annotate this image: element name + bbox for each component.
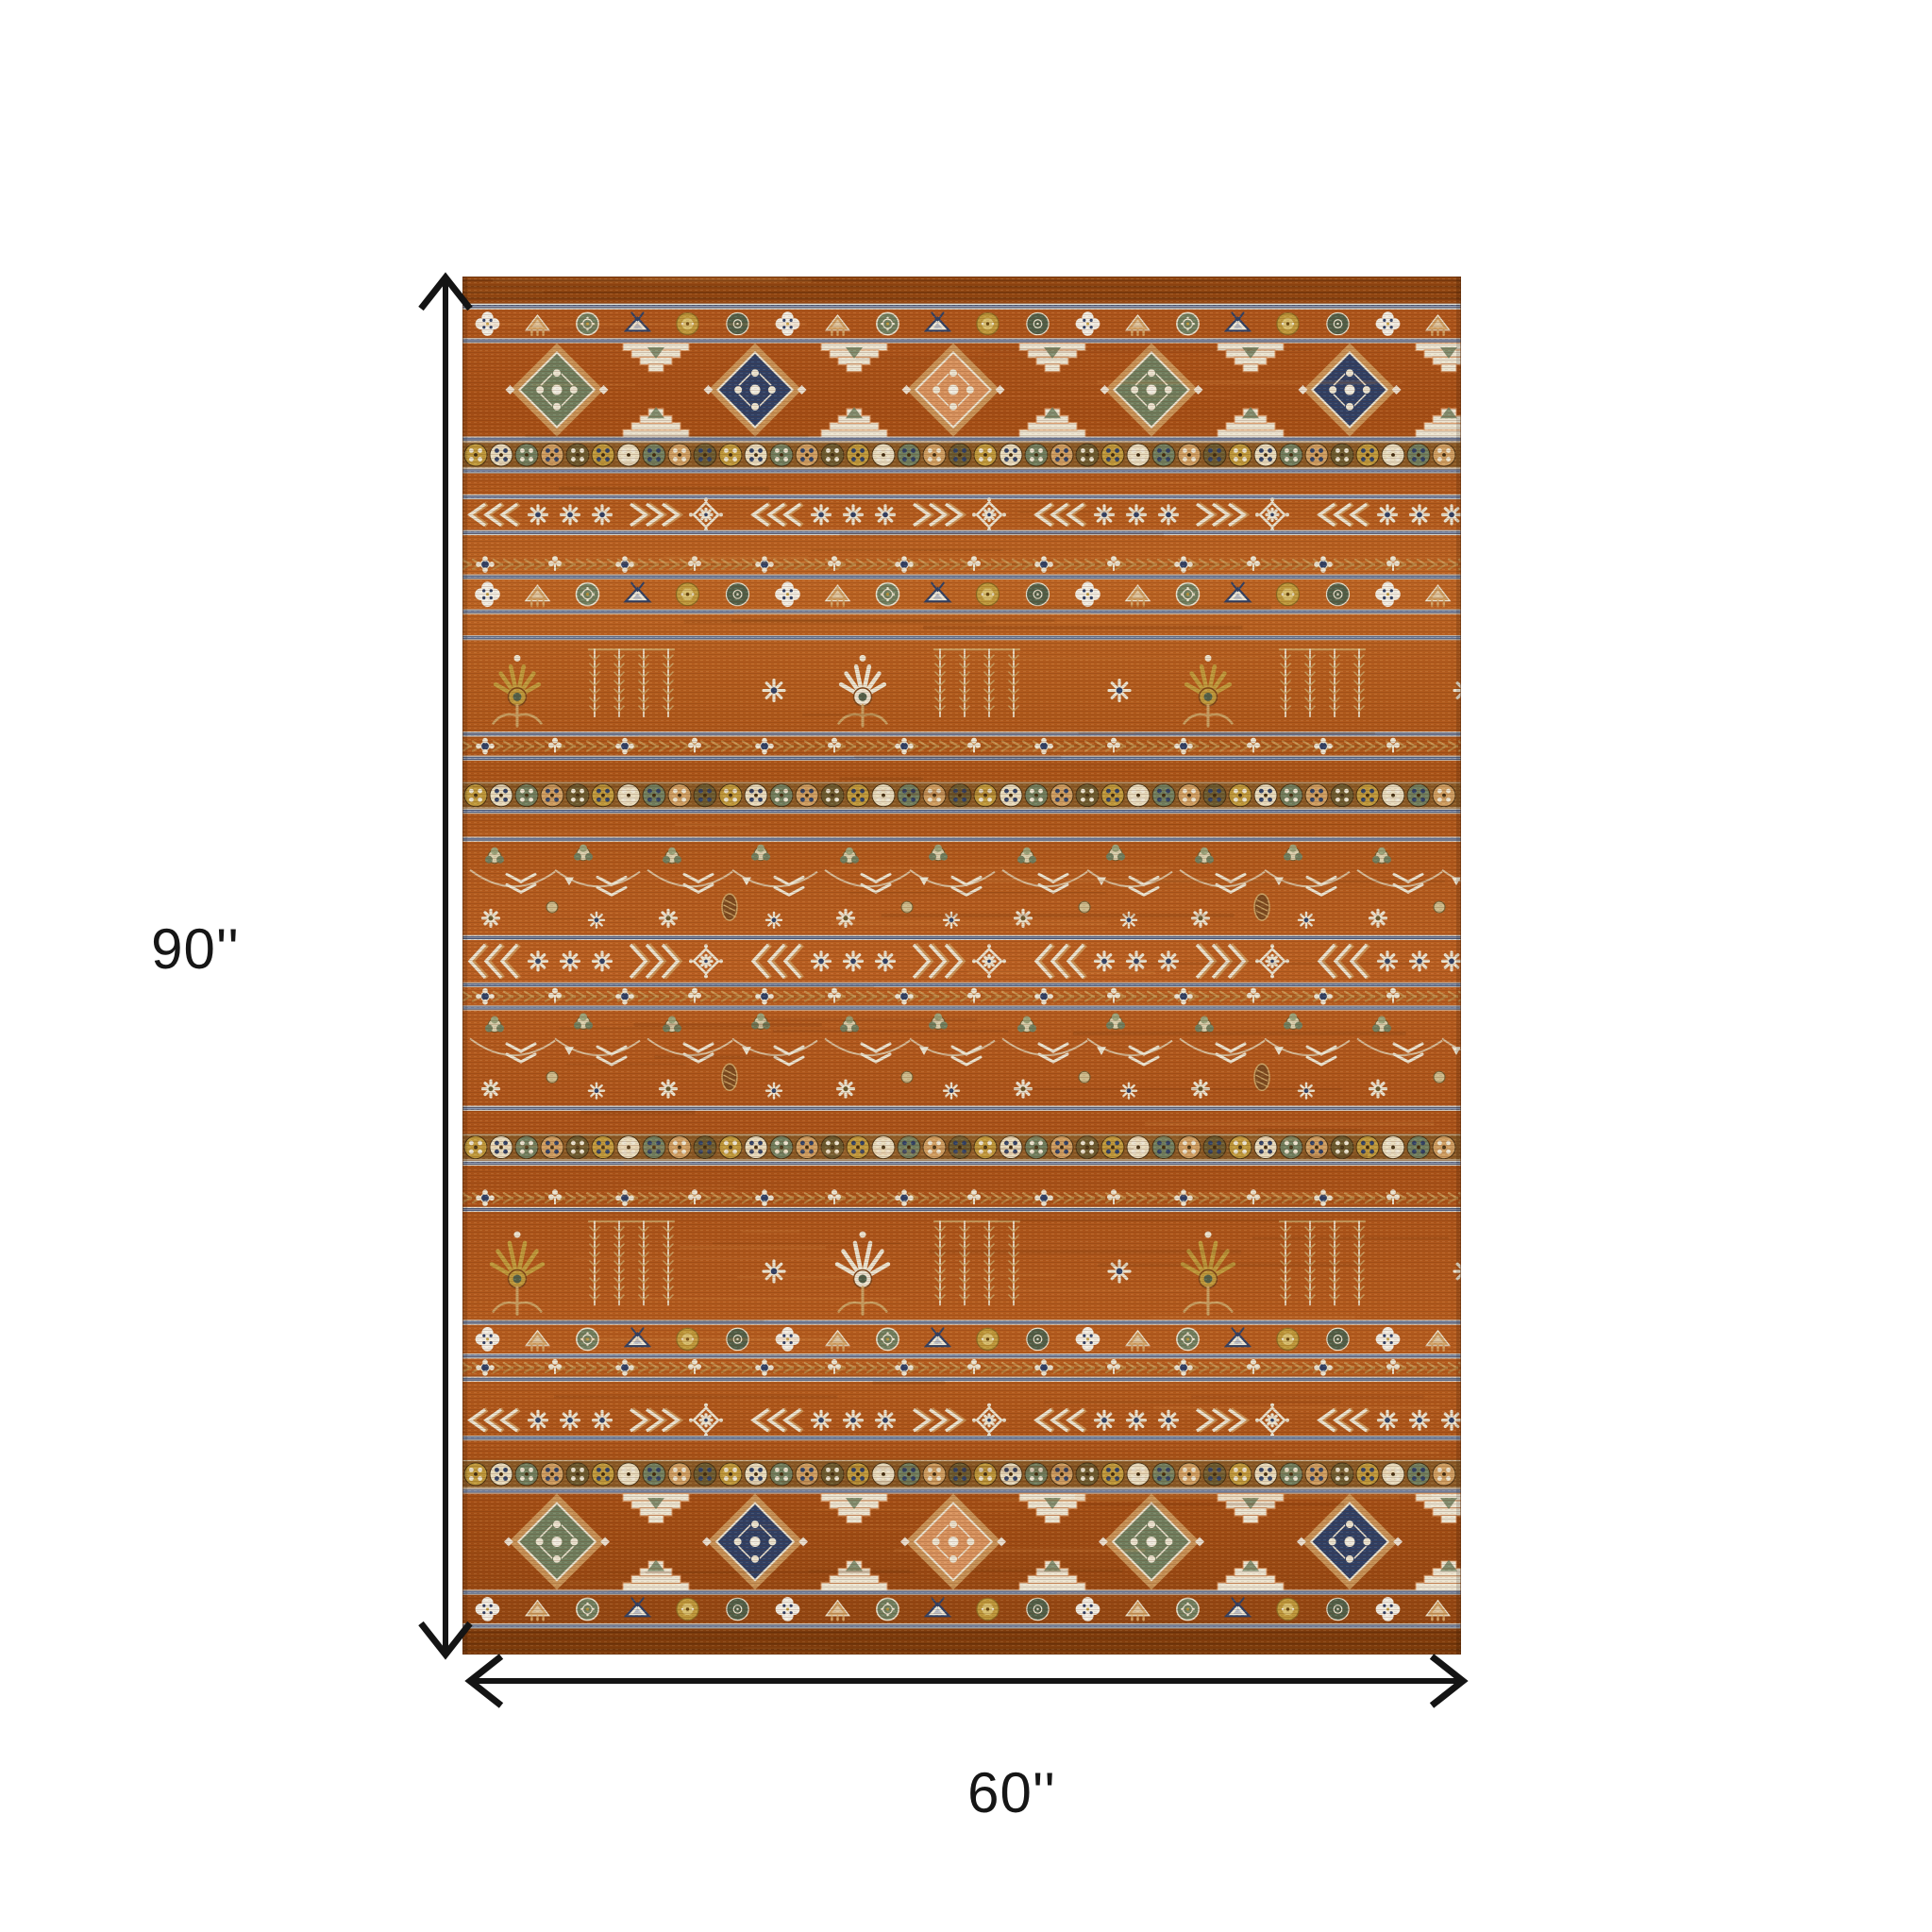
figure-svg <box>0 0 1932 1932</box>
rug-image <box>462 277 1680 1655</box>
height-dimension-label: 90'' <box>151 921 240 978</box>
rug-weave-texture <box>462 277 1461 1655</box>
width-dimension-label: 60'' <box>967 1765 1056 1822</box>
product-dimension-figure: 90'' 60'' <box>0 0 1932 1932</box>
